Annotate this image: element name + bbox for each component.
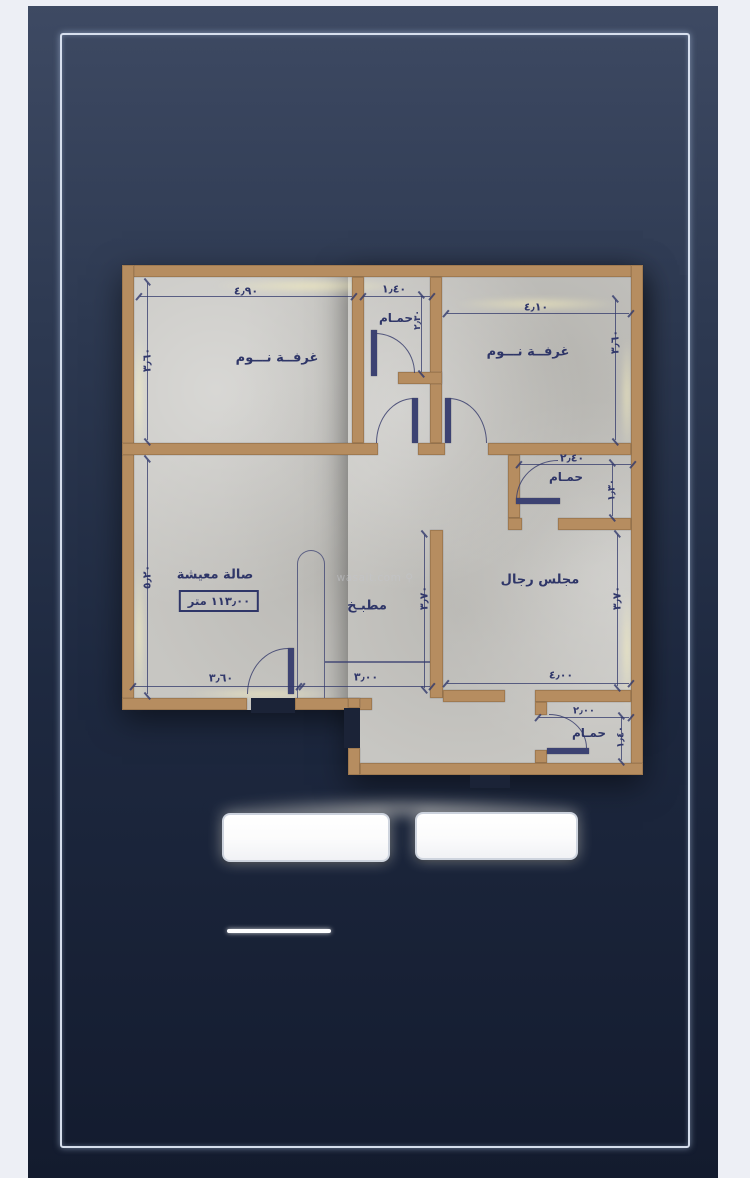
room-label-bedroom-top-left: غرفــة نـــوم bbox=[236, 351, 319, 366]
dim-kitchen-height: ٣٫٧٠ bbox=[418, 586, 431, 610]
room-label-living: صالة معيشة bbox=[177, 568, 254, 583]
wall bbox=[430, 277, 442, 443]
room-label-bathroom-top: حمـام bbox=[379, 311, 413, 325]
dim-bedroom-tl-height: ٣٫٦٠ bbox=[141, 348, 154, 372]
dim-line bbox=[539, 717, 629, 718]
dim-bedroom-tr-height: ٣٫٦٠ bbox=[609, 330, 622, 354]
doorway-notch bbox=[251, 698, 295, 713]
blank-button-right[interactable] bbox=[415, 812, 578, 860]
dim-living-height: ٥٫٢٠ bbox=[141, 565, 154, 589]
dim-line bbox=[617, 535, 618, 686]
blank-button-left[interactable] bbox=[222, 813, 390, 862]
wall bbox=[443, 690, 505, 702]
wall bbox=[122, 698, 247, 710]
door-leaf bbox=[288, 648, 294, 694]
room-label-bathroom-bottom: حمـام bbox=[572, 726, 606, 740]
wall bbox=[508, 518, 522, 530]
dim-line bbox=[424, 535, 425, 688]
mat-right bbox=[718, 0, 750, 1178]
doorway-notch bbox=[470, 775, 510, 788]
wall bbox=[122, 443, 378, 455]
dim-line bbox=[134, 686, 300, 687]
living-area-box: ١١٣٫٠٠ متر bbox=[179, 590, 259, 612]
location-pin-icon: ⚲ bbox=[405, 572, 413, 584]
wall bbox=[535, 702, 547, 715]
kitchen-counter bbox=[297, 550, 325, 698]
dim-bathroom-top-width: ١٫٤٠ bbox=[382, 283, 406, 296]
wall bbox=[352, 277, 364, 443]
dim-bathroom-bottom-width: ٢٫٠٠ bbox=[573, 706, 595, 717]
dim-kitchen-bottom-width: ٣٫٠٠ bbox=[354, 671, 378, 684]
kitchen-counter-line bbox=[325, 661, 430, 663]
dim-majlis-height: ٣٫٧٠ bbox=[611, 586, 624, 610]
room-label-bedroom-top-right: غرفــة نـــوم bbox=[487, 345, 570, 360]
dim-bathroom-top-height: ٢٫٣٠ bbox=[413, 310, 423, 330]
dim-bedroom-tl-width: ٤٫٩٠ bbox=[234, 285, 258, 298]
dim-bathroom-mid-height: ١٫٣٠ bbox=[607, 479, 618, 501]
wall bbox=[348, 748, 360, 775]
wall bbox=[122, 265, 643, 277]
dim-bedroom-tr-width: ٤٫١٠ bbox=[524, 301, 548, 314]
dim-bathroom-mid-width: ٢٫٤٠ bbox=[560, 452, 584, 465]
dim-line bbox=[300, 686, 430, 687]
wall bbox=[122, 265, 134, 710]
poster-background: ٤٫٩٠ ١٫٤٠ ٤٫١٠ ٣٫٦٠ ٣٫٦٠ ٢٫٣٠ ٢٫٤٠ ١٫٣٠ … bbox=[0, 0, 750, 1178]
dim-majlis-bottom-width: ٤٫٠٠ bbox=[549, 669, 573, 682]
dim-line bbox=[615, 300, 616, 440]
wall bbox=[295, 698, 372, 710]
watermark-text: wasait.com bbox=[337, 572, 402, 584]
wall bbox=[535, 750, 547, 763]
room-label-kitchen: مطبـخ bbox=[347, 599, 387, 614]
dim-living-bottom-width: ٣٫٦٠ bbox=[209, 672, 233, 685]
doorway-notch bbox=[344, 708, 360, 748]
watermark: wasait.com ⚲ bbox=[337, 572, 414, 584]
room-label-majlis: مجلس رجال bbox=[501, 573, 580, 588]
dim-line bbox=[447, 683, 629, 684]
wall bbox=[360, 763, 643, 775]
mat-left bbox=[0, 0, 28, 1178]
wall bbox=[430, 530, 443, 698]
floor-plan: ٤٫٩٠ ١٫٤٠ ٤٫١٠ ٣٫٦٠ ٣٫٦٠ ٢٫٣٠ ٢٫٤٠ ١٫٣٠ … bbox=[122, 265, 643, 775]
room-label-bathroom-middle: حمـام bbox=[549, 470, 583, 484]
door-leaf bbox=[547, 748, 589, 754]
divider-line bbox=[227, 929, 331, 933]
dim-bathroom-bottom-height: ١٫٤٠ bbox=[616, 726, 627, 748]
wall bbox=[348, 698, 360, 708]
wall bbox=[535, 690, 631, 702]
dim-line bbox=[421, 296, 422, 372]
wall bbox=[631, 265, 643, 775]
wall bbox=[418, 443, 445, 455]
wall bbox=[558, 518, 631, 530]
mat-top bbox=[0, 0, 750, 6]
